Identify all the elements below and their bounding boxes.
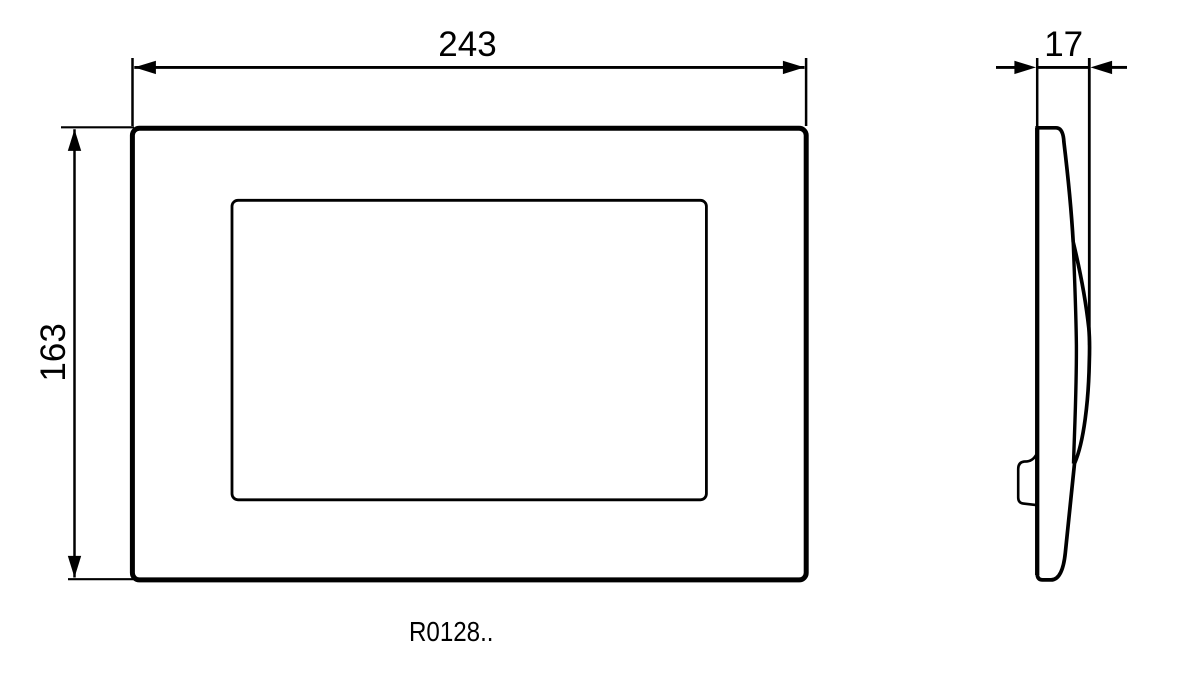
- svg-text:163: 163: [34, 323, 73, 381]
- svg-text:243: 243: [438, 25, 496, 64]
- svg-text:17: 17: [1044, 25, 1083, 64]
- svg-text:R0128..: R0128..: [409, 616, 494, 647]
